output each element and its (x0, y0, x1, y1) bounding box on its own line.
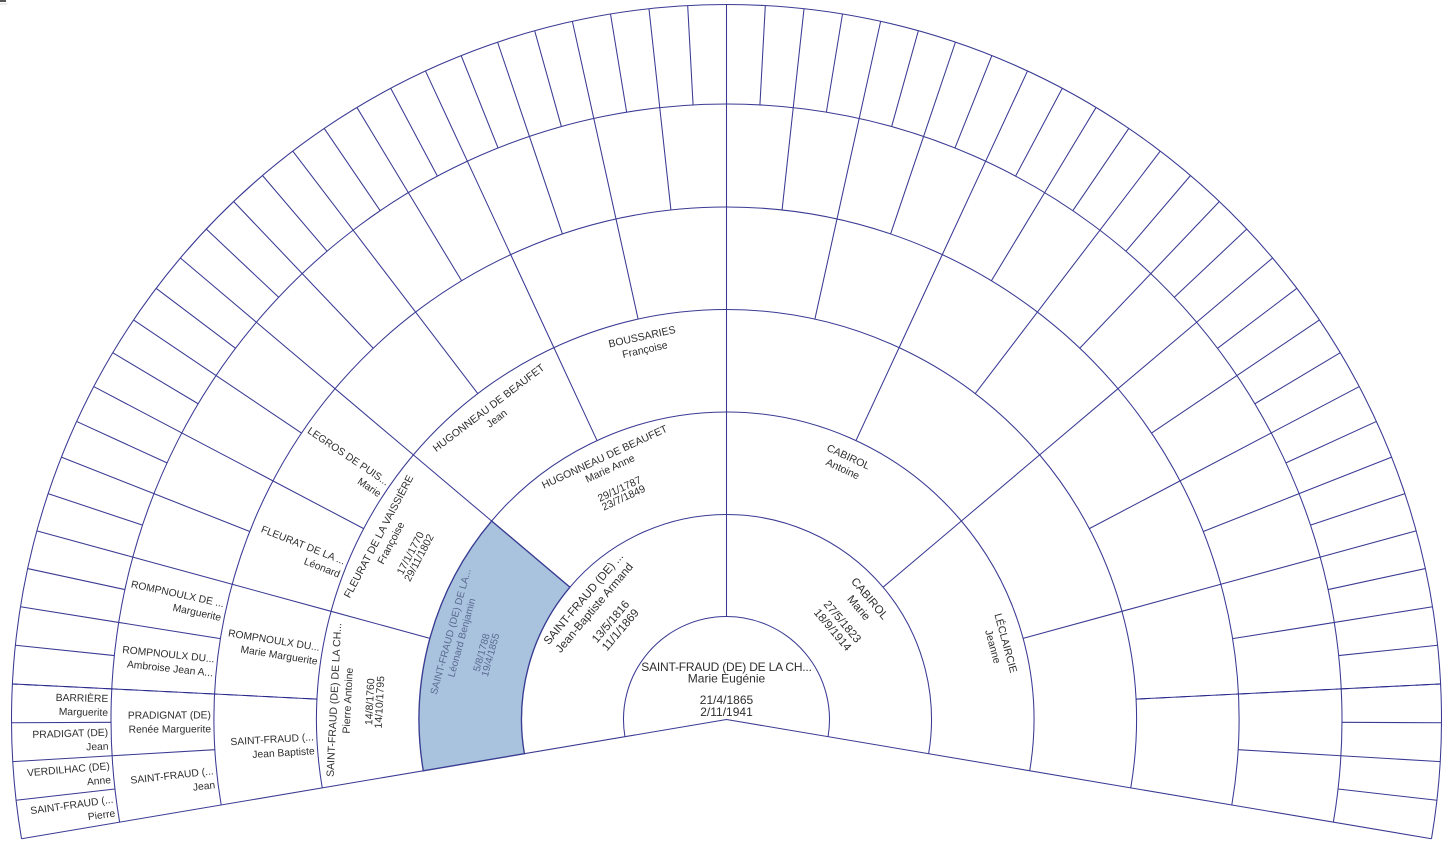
svg-text:PRADIGNAT (DE): PRADIGNAT (DE) (128, 710, 211, 721)
svg-text:Anne: Anne (87, 775, 112, 788)
svg-text:BARRIÈRE: BARRIÈRE (56, 691, 109, 705)
svg-text:Marguerite: Marguerite (59, 707, 109, 719)
svg-text:2/11/1941: 2/11/1941 (700, 705, 753, 719)
svg-text:Jean: Jean (86, 742, 109, 754)
svg-text:Marie Eugénie: Marie Eugénie (688, 672, 766, 686)
svg-text:Renée Marguerite: Renée Marguerite (129, 724, 212, 735)
